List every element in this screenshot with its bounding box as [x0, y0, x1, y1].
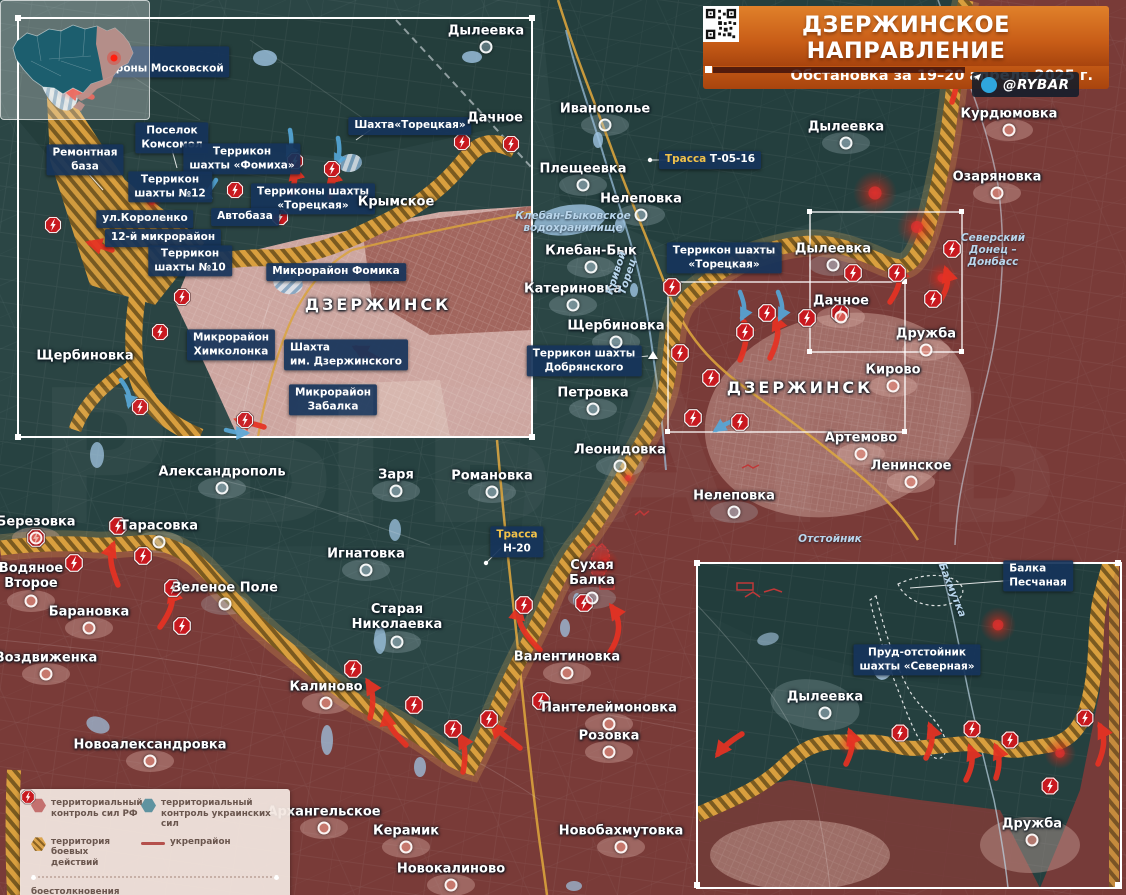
legend-label: боестолкновения — [31, 887, 119, 895]
legend-item-rf-control: территориальный контроль сил РФ — [31, 798, 131, 830]
ukraine-locator-map — [0, 0, 150, 120]
qr-code — [703, 6, 739, 42]
inset-bottomright-map — [694, 560, 1121, 890]
legend-label: территория боевых действий — [51, 837, 131, 869]
rybar-handle: @RYBAR — [1003, 77, 1070, 93]
legend-item-combat-zone: территория боевых действий — [31, 837, 131, 869]
legend-label: укрепрайон — [170, 837, 231, 848]
legend-label: территориальный контроль сил РФ — [51, 798, 143, 819]
legend-separator — [31, 876, 279, 879]
page-title: ДЗЕРЖИНСКОЕ НАПРАВЛЕНИЕ — [703, 6, 1109, 66]
legend-item-ua-control: территориальный контроль украинских сил — [141, 798, 279, 830]
legend-item-fortified-area: укрепрайон — [141, 837, 279, 869]
clash-icon — [20, 789, 36, 805]
title-underline — [713, 67, 965, 73]
ua-control-hex-icon — [141, 798, 156, 813]
map-stage: ИванопольеПлещеевкаНелеповкаКлебан-БыкКа… — [0, 0, 1126, 895]
legend-label: территориальный контроль украинских сил — [161, 798, 279, 830]
base-map — [0, 0, 1126, 895]
title-banner: ДЗЕРЖИНСКОЕ НАПРАВЛЕНИЕ Обстановка за 19… — [703, 6, 1109, 89]
telegram-icon — [981, 77, 997, 93]
location-dot — [111, 55, 118, 62]
combat-zone-hex-icon — [31, 837, 46, 852]
rybar-badge: @RYBAR — [972, 72, 1079, 97]
fortified-line-icon — [141, 842, 165, 845]
legend-item-clashes: боестолкновения — [31, 887, 131, 895]
map-legend: территориальный контроль сил РФ территор… — [20, 789, 290, 895]
